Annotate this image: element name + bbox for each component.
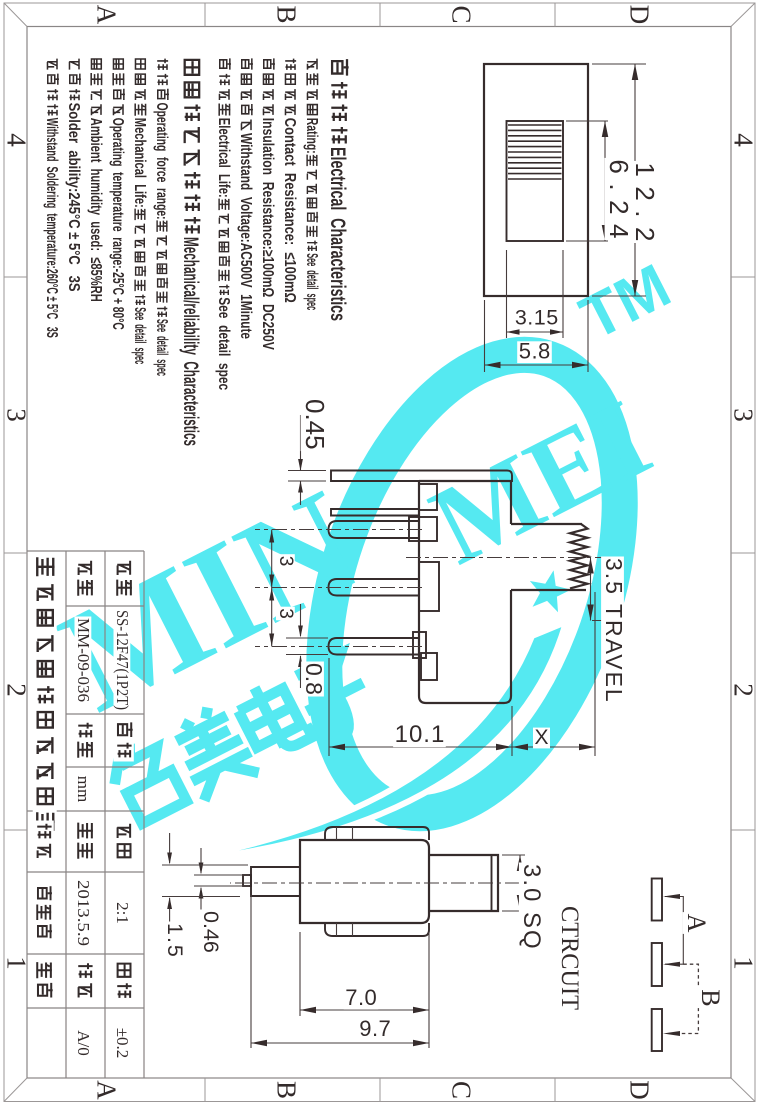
svg-text:0.46: 0.46 — [199, 911, 223, 953]
svg-text:Electrical Characteristics: Electrical Characteristics — [326, 147, 349, 321]
svg-text:Mechanical/reliability Charac: Mechanical/reliability Characteristics — [179, 237, 202, 446]
svg-text:4: 4 — [729, 133, 758, 147]
svg-text:0.45: 0.45 — [300, 399, 330, 450]
svg-text:B: B — [696, 989, 725, 1006]
svg-text:A: A — [682, 914, 711, 933]
svg-text:mm: mm — [74, 776, 93, 802]
svg-text:Electrical Life:: Electrical Life: — [215, 118, 232, 198]
svg-text:See detail spec: See detail spec — [131, 307, 148, 364]
svg-text:X: X — [535, 726, 549, 749]
svg-text:3: 3 — [729, 408, 758, 422]
svg-text:Mechanical Life:: Mechanical Life: — [131, 118, 148, 208]
svg-text:3.15: 3.15 — [515, 306, 559, 330]
svg-text:2: 2 — [2, 683, 32, 697]
svg-text:6.24: 6.24 — [604, 159, 634, 248]
svg-text:Operating temperature range:: Operating temperature range:-25°C + 80°C — [109, 118, 126, 330]
svg-text:3: 3 — [275, 556, 296, 567]
svg-text:10.1: 10.1 — [395, 721, 446, 748]
svg-text:A: A — [92, 5, 122, 25]
svg-text:B: B — [272, 5, 302, 23]
svg-text:C: C — [447, 5, 477, 23]
svg-text:2013.5.9: 2013.5.9 — [74, 880, 93, 946]
svg-text:Insulation Resistance:≥100mΩ: Insulation Resistance:≥100mΩ DC250V — [259, 118, 276, 351]
svg-text:CTRCUIT: CTRCUIT — [556, 906, 583, 1010]
svg-text:2: 2 — [729, 683, 758, 697]
svg-text:C: C — [447, 1081, 477, 1099]
svg-text:SS-12F47(1P2T): SS-12F47(1P2T) — [113, 610, 132, 710]
svg-text:2:1: 2:1 — [113, 902, 132, 924]
svg-text:Solder ability:245°C ± 5°C: Solder ability:245°C ± 5°C 3S — [65, 103, 82, 292]
svg-text:A: A — [92, 1080, 122, 1100]
svg-text:±0.2: ±0.2 — [113, 1028, 132, 1059]
svg-text:D: D — [625, 5, 655, 25]
svg-text:See detail spec: See detail spec — [215, 297, 232, 390]
svg-text:3: 3 — [2, 408, 32, 422]
svg-text:Rating:: Rating: — [303, 118, 320, 154]
svg-text:5.8: 5.8 — [519, 339, 551, 364]
svg-text:1: 1 — [2, 956, 32, 970]
svg-text:9.7: 9.7 — [359, 1016, 391, 1041]
svg-text:Withstand Voltage:AC500V 1Mi: Withstand Voltage:AC500V 1Minute — [237, 133, 254, 339]
svg-text:3.0 SQ: 3.0 SQ — [518, 864, 545, 951]
svg-text:3: 3 — [275, 608, 296, 619]
svg-text:A/0: A/0 — [74, 1030, 93, 1056]
svg-text:4: 4 — [2, 133, 32, 147]
svg-text:0.8: 0.8 — [301, 663, 327, 695]
svg-text:1.5: 1.5 — [163, 923, 187, 959]
svg-text:Contact Resistance: ≤100mΩ: Contact Resistance: ≤100mΩ — [281, 118, 298, 303]
svg-text:1: 1 — [729, 956, 758, 970]
svg-text:7.0: 7.0 — [345, 985, 377, 1010]
svg-text:MM-09-036: MM-09-036 — [74, 618, 93, 702]
svg-text:Withstand Soldering temperat: Withstand Soldering temperature:260°C ± … — [43, 118, 60, 338]
svg-text:12.2: 12.2 — [630, 162, 660, 251]
svg-text:See detail spec: See detail spec — [153, 319, 170, 376]
svg-text:Ambient humidity used: ≤85%: Ambient humidity used: ≤85%RH — [87, 118, 104, 302]
svg-text:D: D — [625, 1080, 655, 1100]
svg-text:See detail spec: See detail spec — [303, 253, 320, 310]
svg-text:Operating force range:: Operating force range: — [153, 103, 170, 220]
svg-text:B: B — [272, 1081, 302, 1099]
svg-text:3.5 TRAVEL: 3.5 TRAVEL — [601, 558, 627, 704]
